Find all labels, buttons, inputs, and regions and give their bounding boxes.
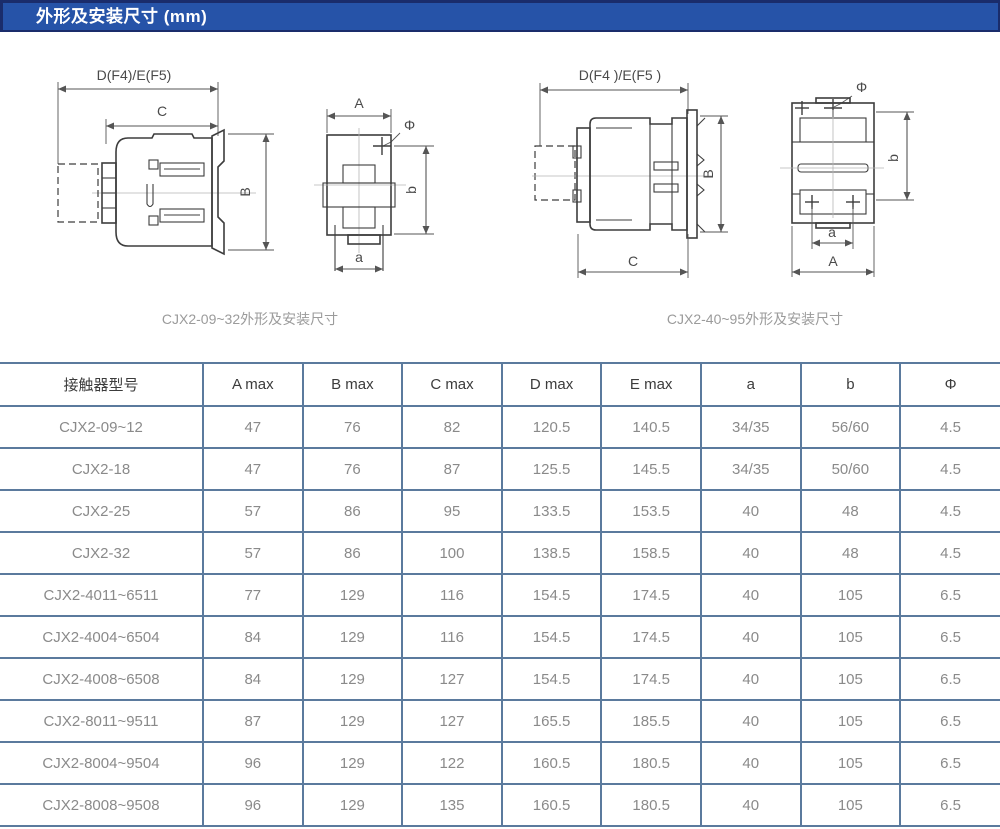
- table-body: CJX2-09~12477682120.5140.534/3556/604.5C…: [0, 406, 1000, 826]
- dim-label-phi-small: Φ: [404, 117, 415, 133]
- value-cell: 140.5: [601, 406, 701, 448]
- value-cell: 120.5: [502, 406, 602, 448]
- value-cell: 154.5: [502, 574, 602, 616]
- model-cell: CJX2-25: [0, 490, 203, 532]
- value-cell: 174.5: [601, 658, 701, 700]
- header-e-max: E max: [601, 363, 701, 406]
- value-cell: 129: [303, 658, 403, 700]
- value-cell: 129: [303, 742, 403, 784]
- value-cell: 4.5: [900, 490, 1000, 532]
- model-cell: CJX2-8004~9504: [0, 742, 203, 784]
- value-cell: 158.5: [601, 532, 701, 574]
- table-row: CJX2-4008~650884129127154.5174.5401056.5: [0, 658, 1000, 700]
- value-cell: 77: [203, 574, 303, 616]
- value-cell: 105: [801, 700, 901, 742]
- value-cell: 82: [402, 406, 502, 448]
- value-cell: 87: [203, 700, 303, 742]
- header-model: 接触器型号: [0, 363, 203, 406]
- value-cell: 129: [303, 616, 403, 658]
- value-cell: 185.5: [601, 700, 701, 742]
- table-row: CJX2-8004~950496129122160.5180.5401056.5: [0, 742, 1000, 784]
- model-cell: CJX2-18: [0, 448, 203, 490]
- value-cell: 86: [303, 532, 403, 574]
- table-row: CJX2-09~12477682120.5140.534/3556/604.5: [0, 406, 1000, 448]
- value-cell: 154.5: [502, 658, 602, 700]
- value-cell: 6.5: [900, 658, 1000, 700]
- value-cell: 76: [303, 448, 403, 490]
- model-cell: CJX2-32: [0, 532, 203, 574]
- header-b-max: B max: [303, 363, 403, 406]
- value-cell: 6.5: [900, 742, 1000, 784]
- value-cell: 122: [402, 742, 502, 784]
- value-cell: 40: [701, 532, 801, 574]
- value-cell: 96: [203, 742, 303, 784]
- dim-label-b-mount-small: b: [403, 186, 419, 194]
- value-cell: 6.5: [900, 784, 1000, 826]
- value-cell: 145.5: [601, 448, 701, 490]
- model-cell: CJX2-4004~6504: [0, 616, 203, 658]
- value-cell: 40: [701, 742, 801, 784]
- table-row: CJX2-4004~650484129116154.5174.5401056.5: [0, 616, 1000, 658]
- value-cell: 48: [801, 532, 901, 574]
- value-cell: 105: [801, 574, 901, 616]
- caption-large-drawing: CJX2-40~95外形及安装尺寸: [595, 309, 915, 329]
- value-cell: 76: [303, 406, 403, 448]
- table-row: CJX2-18477687125.5145.534/3550/604.5: [0, 448, 1000, 490]
- value-cell: 96: [203, 784, 303, 826]
- dim-label-a-front-small: A: [354, 95, 364, 111]
- model-cell: CJX2-4011~6511: [0, 574, 203, 616]
- value-cell: 48: [801, 490, 901, 532]
- value-cell: 56/60: [801, 406, 901, 448]
- table-row: CJX2-8008~950896129135160.5180.5401056.5: [0, 784, 1000, 826]
- dim-label-a-mount-large: a: [828, 224, 836, 240]
- header-c-max: C max: [402, 363, 502, 406]
- value-cell: 160.5: [502, 742, 602, 784]
- value-cell: 84: [203, 658, 303, 700]
- value-cell: 116: [402, 574, 502, 616]
- dim-label-d-large: D(F4 )/E(F5 ): [579, 67, 661, 83]
- table-row: CJX2-325786100138.5158.540484.5: [0, 532, 1000, 574]
- value-cell: 165.5: [502, 700, 602, 742]
- header-d-max: D max: [502, 363, 602, 406]
- dim-label-phi-large: Φ: [856, 79, 867, 95]
- value-cell: 154.5: [502, 616, 602, 658]
- value-cell: 86: [303, 490, 403, 532]
- value-cell: 4.5: [900, 406, 1000, 448]
- dim-label-d-small: D(F4)/E(F5): [97, 67, 172, 83]
- value-cell: 84: [203, 616, 303, 658]
- dim-label-c-large: C: [628, 253, 638, 269]
- value-cell: 57: [203, 532, 303, 574]
- value-cell: 105: [801, 616, 901, 658]
- header-a: a: [701, 363, 801, 406]
- value-cell: 50/60: [801, 448, 901, 490]
- value-cell: 6.5: [900, 574, 1000, 616]
- page-title: 外形及安装尺寸 (mm): [3, 3, 998, 30]
- value-cell: 129: [303, 574, 403, 616]
- value-cell: 100: [402, 532, 502, 574]
- value-cell: 4.5: [900, 448, 1000, 490]
- dim-label-a-mount-small: a: [355, 249, 363, 265]
- value-cell: 95: [402, 490, 502, 532]
- value-cell: 40: [701, 490, 801, 532]
- value-cell: 127: [402, 658, 502, 700]
- value-cell: 105: [801, 784, 901, 826]
- model-cell: CJX2-09~12: [0, 406, 203, 448]
- value-cell: 47: [203, 448, 303, 490]
- dim-label-b-small: B: [237, 187, 253, 196]
- value-cell: 135: [402, 784, 502, 826]
- header-a-max: A max: [203, 363, 303, 406]
- value-cell: 4.5: [900, 532, 1000, 574]
- value-cell: 133.5: [502, 490, 602, 532]
- drawing-side-view-small: D(F4)/E(F5) C B: [52, 66, 284, 268]
- dim-label-b-mount-large: b: [885, 154, 901, 162]
- value-cell: 174.5: [601, 616, 701, 658]
- dim-label-c-small: C: [157, 103, 167, 119]
- dim-label-b-large: B: [700, 169, 716, 178]
- header-b: b: [801, 363, 901, 406]
- value-cell: 105: [801, 742, 901, 784]
- value-cell: 129: [303, 784, 403, 826]
- value-cell: 153.5: [601, 490, 701, 532]
- value-cell: 174.5: [601, 574, 701, 616]
- table-row: CJX2-25578695133.5153.540484.5: [0, 490, 1000, 532]
- value-cell: 125.5: [502, 448, 602, 490]
- value-cell: 116: [402, 616, 502, 658]
- value-cell: 180.5: [601, 742, 701, 784]
- value-cell: 34/35: [701, 448, 801, 490]
- dim-label-a-front-large: A: [828, 253, 838, 269]
- value-cell: 105: [801, 658, 901, 700]
- value-cell: 47: [203, 406, 303, 448]
- caption-small-drawing: CJX2-09~32外形及安装尺寸: [90, 309, 410, 329]
- dimensions-table: 接触器型号 A max B max C max D max E max a b …: [0, 362, 1000, 827]
- value-cell: 160.5: [502, 784, 602, 826]
- value-cell: 40: [701, 658, 801, 700]
- drawing-front-view-large: Φ b a A: [772, 76, 922, 284]
- header-phi: Φ: [900, 363, 1000, 406]
- value-cell: 6.5: [900, 700, 1000, 742]
- table-row: CJX2-4011~651177129116154.5174.5401056.5: [0, 574, 1000, 616]
- value-cell: 127: [402, 700, 502, 742]
- table-header-row: 接触器型号 A max B max C max D max E max a b …: [0, 363, 1000, 406]
- value-cell: 6.5: [900, 616, 1000, 658]
- model-cell: CJX2-8011~9511: [0, 700, 203, 742]
- value-cell: 40: [701, 700, 801, 742]
- value-cell: 40: [701, 616, 801, 658]
- value-cell: 87: [402, 448, 502, 490]
- value-cell: 40: [701, 574, 801, 616]
- drawing-front-view-small: A Φ b a: [312, 78, 446, 284]
- section-title-bar: 外形及安装尺寸 (mm): [0, 0, 1000, 32]
- value-cell: 129: [303, 700, 403, 742]
- value-cell: 138.5: [502, 532, 602, 574]
- value-cell: 180.5: [601, 784, 701, 826]
- value-cell: 57: [203, 490, 303, 532]
- value-cell: 34/35: [701, 406, 801, 448]
- value-cell: 40: [701, 784, 801, 826]
- table-row: CJX2-8011~951187129127165.5185.5401056.5: [0, 700, 1000, 742]
- model-cell: CJX2-8008~9508: [0, 784, 203, 826]
- drawing-side-view-large: D(F4 )/E(F5 ) B C: [532, 66, 732, 280]
- model-cell: CJX2-4008~6508: [0, 658, 203, 700]
